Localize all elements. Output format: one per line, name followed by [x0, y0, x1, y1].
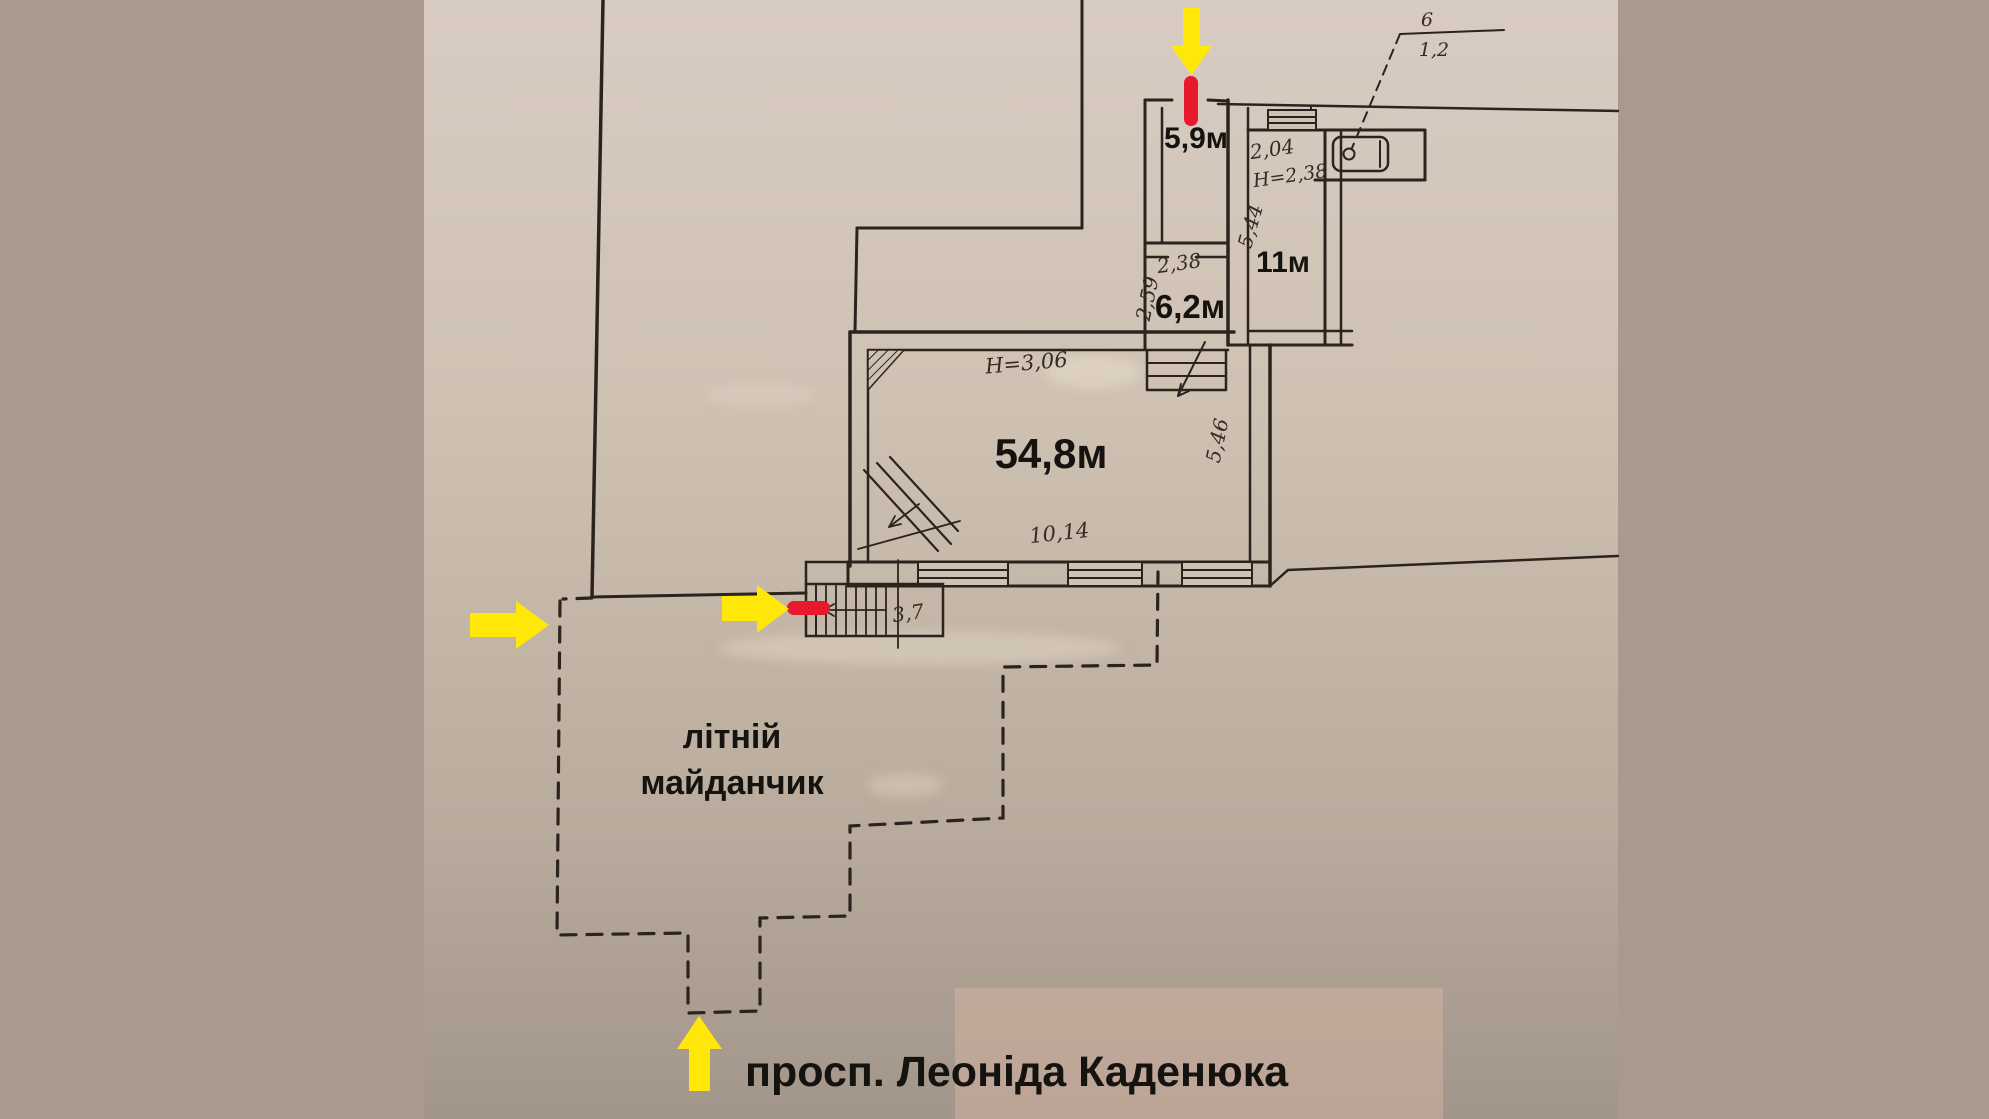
paper-sheet [424, 0, 1618, 1119]
room-area-label-6-2: 6,2м [1155, 288, 1225, 325]
room11-window [1268, 110, 1316, 130]
room-area-label-5-9: 5,9м [1164, 122, 1228, 155]
room-area-label-54-8: 54,8м [995, 430, 1108, 477]
door-marker-side [787, 601, 830, 615]
dim-3-7: 3,7 [891, 599, 926, 627]
street-wall-windows [918, 562, 1252, 586]
terrace-label-line2: майданчик [640, 764, 824, 802]
ref-note-6: 6 [1421, 9, 1433, 31]
door-marker-top [1184, 76, 1198, 126]
annotated-floor-plan-photo: 5,9м 11м 6,2м 54,8м літній майданчик про… [0, 0, 1989, 1119]
street-name-label: просп. Леоніда Каденюка [745, 1048, 1289, 1096]
room-area-label-11: 11м [1256, 246, 1310, 279]
ref-note-1-2: 1,2 [1419, 39, 1449, 61]
floor-plan-canvas: 5,9м 11м 6,2м 54,8м літній майданчик про… [0, 0, 1989, 1119]
terrace-label-line1: літній [683, 718, 782, 756]
